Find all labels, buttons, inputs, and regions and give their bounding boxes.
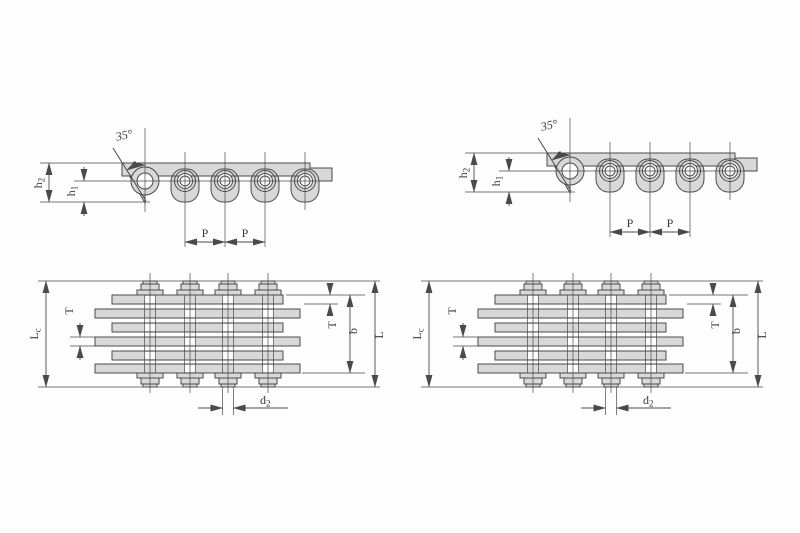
diagram-side-view-type2: 35° h2 h1 P P	[456, 116, 757, 237]
pitch-label-1: P	[627, 216, 634, 230]
h2-label: h2	[456, 168, 472, 179]
drawing-canvas: 35° h2 h1 P P 35° h2 h1 P P Lc T T b L d…	[0, 0, 800, 533]
t-label-left: T	[62, 307, 76, 315]
l-label: L	[372, 331, 386, 338]
b-label: b	[346, 328, 360, 334]
t-label-right: T	[325, 321, 339, 329]
pitch-label-2: P	[667, 216, 674, 230]
lc-label: Lc	[27, 328, 43, 339]
h2-label: h2	[31, 178, 47, 189]
lc-label: Lc	[410, 328, 426, 339]
t-label-right: T	[708, 321, 722, 329]
l-label: L	[755, 331, 769, 338]
d2-label: d2	[260, 393, 271, 409]
leaf-chain-drawing: 35° h2 h1 P P 35° h2 h1 P P Lc T T b L d…	[0, 0, 800, 533]
angle-label: 35°	[114, 126, 135, 143]
diagram-plan-view-type2: Lc T T b L d2	[410, 273, 769, 415]
pitch-label-1: P	[202, 226, 209, 240]
diagram-plan-view-type1: Lc T T b L d2	[27, 273, 386, 415]
h1-label: h1	[64, 186, 80, 197]
t-label-left: T	[445, 307, 459, 315]
d2-label: d2	[643, 393, 654, 409]
b-label: b	[729, 328, 743, 334]
diagram-side-view-type1: 35° h2 h1 P P	[31, 126, 332, 247]
angle-label: 35°	[539, 116, 560, 133]
pitch-label-2: P	[242, 226, 249, 240]
h1-label: h1	[489, 176, 505, 187]
